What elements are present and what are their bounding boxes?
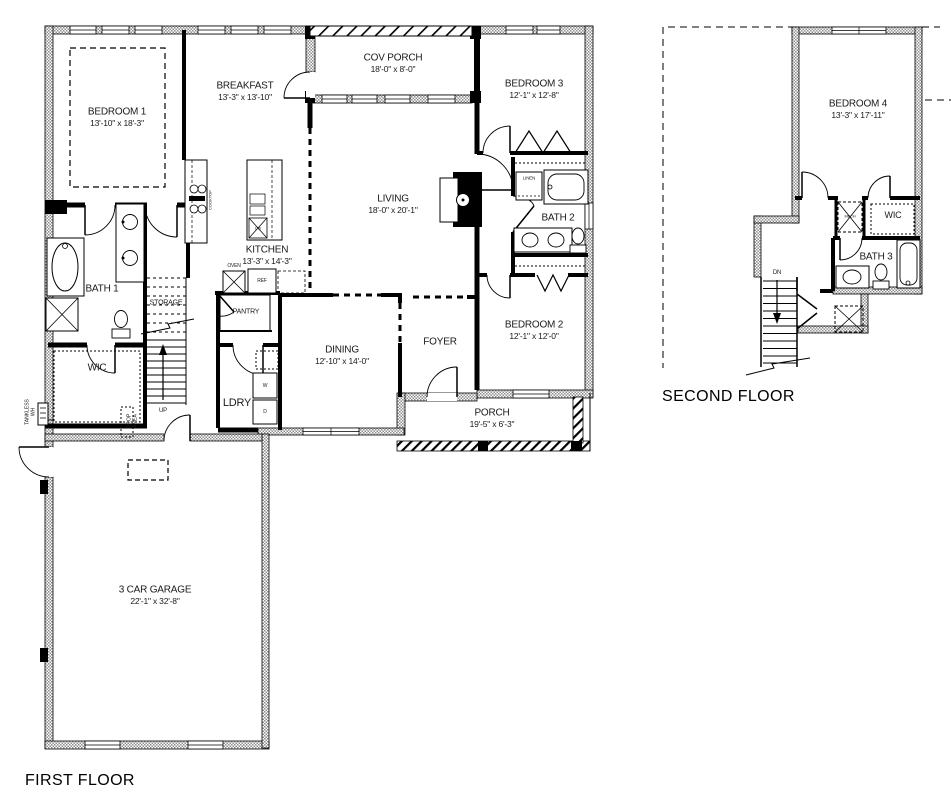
room-label-foyer: FOYER: [423, 337, 456, 348]
label-dryer: D: [263, 409, 266, 415]
room-label-dining: DINING: [325, 345, 359, 356]
cooktop-icon: [189, 185, 206, 213]
bath1-fixtures: [46, 204, 144, 338]
floor-plan-canvas: BEDROOM 1 13'-10" x 18'-3" BREAKFAST 13'…: [0, 0, 951, 809]
toilet-icon: [873, 264, 889, 289]
room-dims-garage: 22'-1" x 32'-8": [130, 596, 179, 606]
toilet-icon: [112, 311, 130, 339]
caption-first-floor: FIRST FLOOR: [25, 772, 135, 790]
bath2-fixtures: [514, 170, 588, 253]
label-tankless-wh: TANKLESSWH: [25, 399, 37, 425]
stairs-first-floor: [141, 278, 194, 405]
cov-porch-screen-edge: [310, 26, 472, 36]
room-label-pantry: PANTRY: [233, 309, 260, 316]
caption-second-floor: SECOND FLOOR: [662, 388, 795, 406]
room-dims-porch: 19'-5" x 6'-3": [470, 419, 515, 429]
fireplace-icon: [440, 172, 482, 227]
kitchen-counter-dashed: [278, 271, 305, 293]
label-dishwasher: DW: [255, 226, 261, 231]
washer-dryer-icons: [253, 373, 277, 424]
room-label-wic-2: WIC: [885, 210, 902, 220]
label-washer: W: [263, 383, 268, 389]
room-label-porch: PORCH: [474, 408, 509, 419]
label-linen: LINEN: [523, 176, 535, 181]
room-label-kitchen: KITCHEN: [246, 245, 289, 256]
label-oven: OVEN: [227, 263, 240, 269]
attic-access-outline: [128, 460, 168, 480]
room-label-bedroom-2: BEDROOM 2: [505, 320, 563, 331]
room-label-bath-2: BATH 2: [541, 213, 574, 224]
room-label-bedroom-3: BEDROOM 3: [505, 79, 563, 90]
room-dims-bedroom-3: 12'-1" x 12'-8": [509, 90, 558, 100]
doors: [797, 172, 890, 329]
exterior-walls: [45, 26, 593, 749]
windows: [70, 26, 593, 749]
room-label-living: LIVING: [377, 194, 409, 205]
laundry-shelf: [256, 351, 278, 369]
vanity-icon: [836, 266, 869, 288]
room-label-bedroom-4: BEDROOM 4: [829, 99, 887, 110]
room-dims-dining: 12'-10" x 14'-0": [315, 356, 369, 366]
second-floor-plan: [663, 27, 951, 375]
room-label-wic: WIC: [88, 363, 107, 374]
room-label-bath-3: BATH 3: [859, 252, 892, 263]
kitchen-island: [247, 160, 282, 240]
room-dims-kitchen: 13'-3" x 14'-3": [242, 256, 291, 266]
double-vanity-icon: [116, 204, 144, 282]
room-label-laundry: LDRY: [223, 397, 251, 409]
room-label-bedroom-1: BEDROOM 1: [88, 107, 146, 118]
label-refrigerator: REF: [257, 278, 266, 284]
label-mech: MECH: [845, 214, 856, 219]
room-dims-bedroom-4: 13'-3" x 17'-11": [831, 110, 884, 120]
shower-icon: [46, 298, 78, 331]
label-cooktop: COOKTOP: [209, 190, 214, 210]
bath3-fixtures: [836, 240, 920, 289]
tub-icon: [897, 240, 920, 288]
room-dims-breakfast: 13'-3" x 13'-10": [218, 92, 272, 102]
room-label-bath-1: BATH 1: [85, 284, 118, 295]
room-label-breakfast: BREAKFAST: [216, 81, 273, 92]
label-stairs-dn: DN: [773, 270, 781, 276]
room-dims-bedroom-1: 13'-10" x 18'-3": [90, 118, 144, 128]
room-label-cov-porch: COV PORCH: [364, 53, 423, 64]
label-drop-area: DROPAREA: [127, 414, 139, 428]
double-vanity-icon: [514, 228, 572, 252]
room-label-garage: 3 CAR GARAGE: [119, 585, 192, 596]
room-dims-bedroom-2: 12'-1" x 12'-0": [509, 331, 558, 341]
label-storage: STORAGE: [150, 300, 183, 307]
cased-openings: [310, 128, 467, 343]
room-dims-cov-porch: 18'-0" x 8'-0": [371, 64, 416, 74]
first-floor-plan: [19, 26, 593, 749]
label-stairs-up: UP: [159, 408, 167, 414]
tub-icon: [544, 170, 588, 204]
room-dims-living: 18'-0" x 20'-1": [368, 205, 417, 215]
sink-icon: [250, 194, 265, 204]
tub-icon: [47, 238, 84, 296]
tankless-water-heater-icon: [38, 403, 48, 425]
window-glass-lines: [70, 30, 589, 745]
